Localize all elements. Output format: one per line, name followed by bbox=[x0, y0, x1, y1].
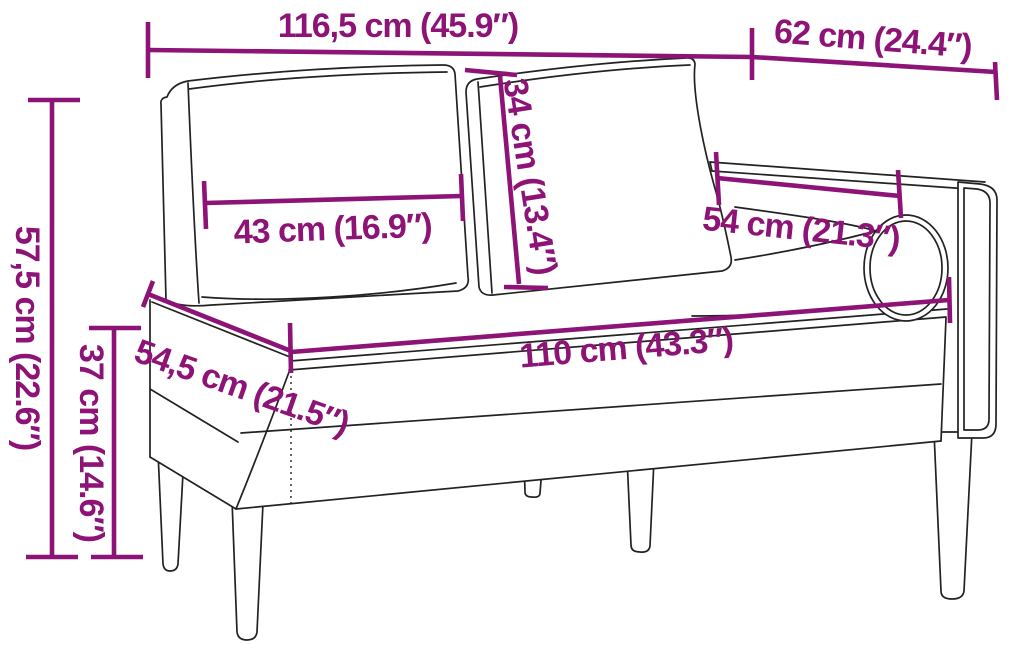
left-cushion-outline bbox=[161, 65, 468, 306]
dim-seat-height-label: 37 cm (14.6″) bbox=[72, 344, 110, 542]
dim-right-section-width: 62 cm (24.4″) bbox=[752, 12, 997, 100]
dim-total-height: 57,5 cm (22.6″) bbox=[8, 100, 80, 557]
dim-total-width-label: 116,5 cm (45.9″) bbox=[278, 7, 518, 45]
dim-total-width-line bbox=[148, 50, 752, 57]
dim-armrest-length-tick-right bbox=[898, 170, 901, 218]
dimension-diagram-canvas: 116,5 cm (45.9″) 62 cm (24.4″) 57,5 cm (… bbox=[0, 0, 1013, 645]
dim-right-section-tick-right bbox=[995, 62, 997, 100]
dim-cushion-height-tick-top bbox=[465, 70, 517, 75]
dim-cushion-width-tick-left bbox=[204, 181, 206, 229]
armrest-rail-top-edge bbox=[710, 162, 985, 182]
dim-armrest-length-line bbox=[717, 178, 900, 196]
leg-front-left bbox=[232, 500, 263, 640]
dim-armrest-length-label: 54 cm (21.3″) bbox=[701, 200, 902, 258]
dim-corner-tick bbox=[290, 323, 291, 373]
leg-right bbox=[934, 432, 972, 599]
chaise-lounge-dimension-diagram: 116,5 cm (45.9″) 62 cm (24.4″) 57,5 cm (… bbox=[0, 0, 1013, 645]
left-back-cushion bbox=[161, 65, 468, 306]
dim-right-section-label: 62 cm (24.4″) bbox=[773, 12, 973, 65]
dim-cushion-height-tick-bottom bbox=[504, 287, 548, 288]
dim-total-height-label: 57,5 cm (22.6″) bbox=[8, 226, 46, 450]
dim-seat-length-tick-right bbox=[949, 277, 950, 323]
dim-cushion-width-tick-right bbox=[461, 174, 463, 221]
dim-cushion-width-label: 43 cm (16.9″) bbox=[233, 207, 432, 252]
